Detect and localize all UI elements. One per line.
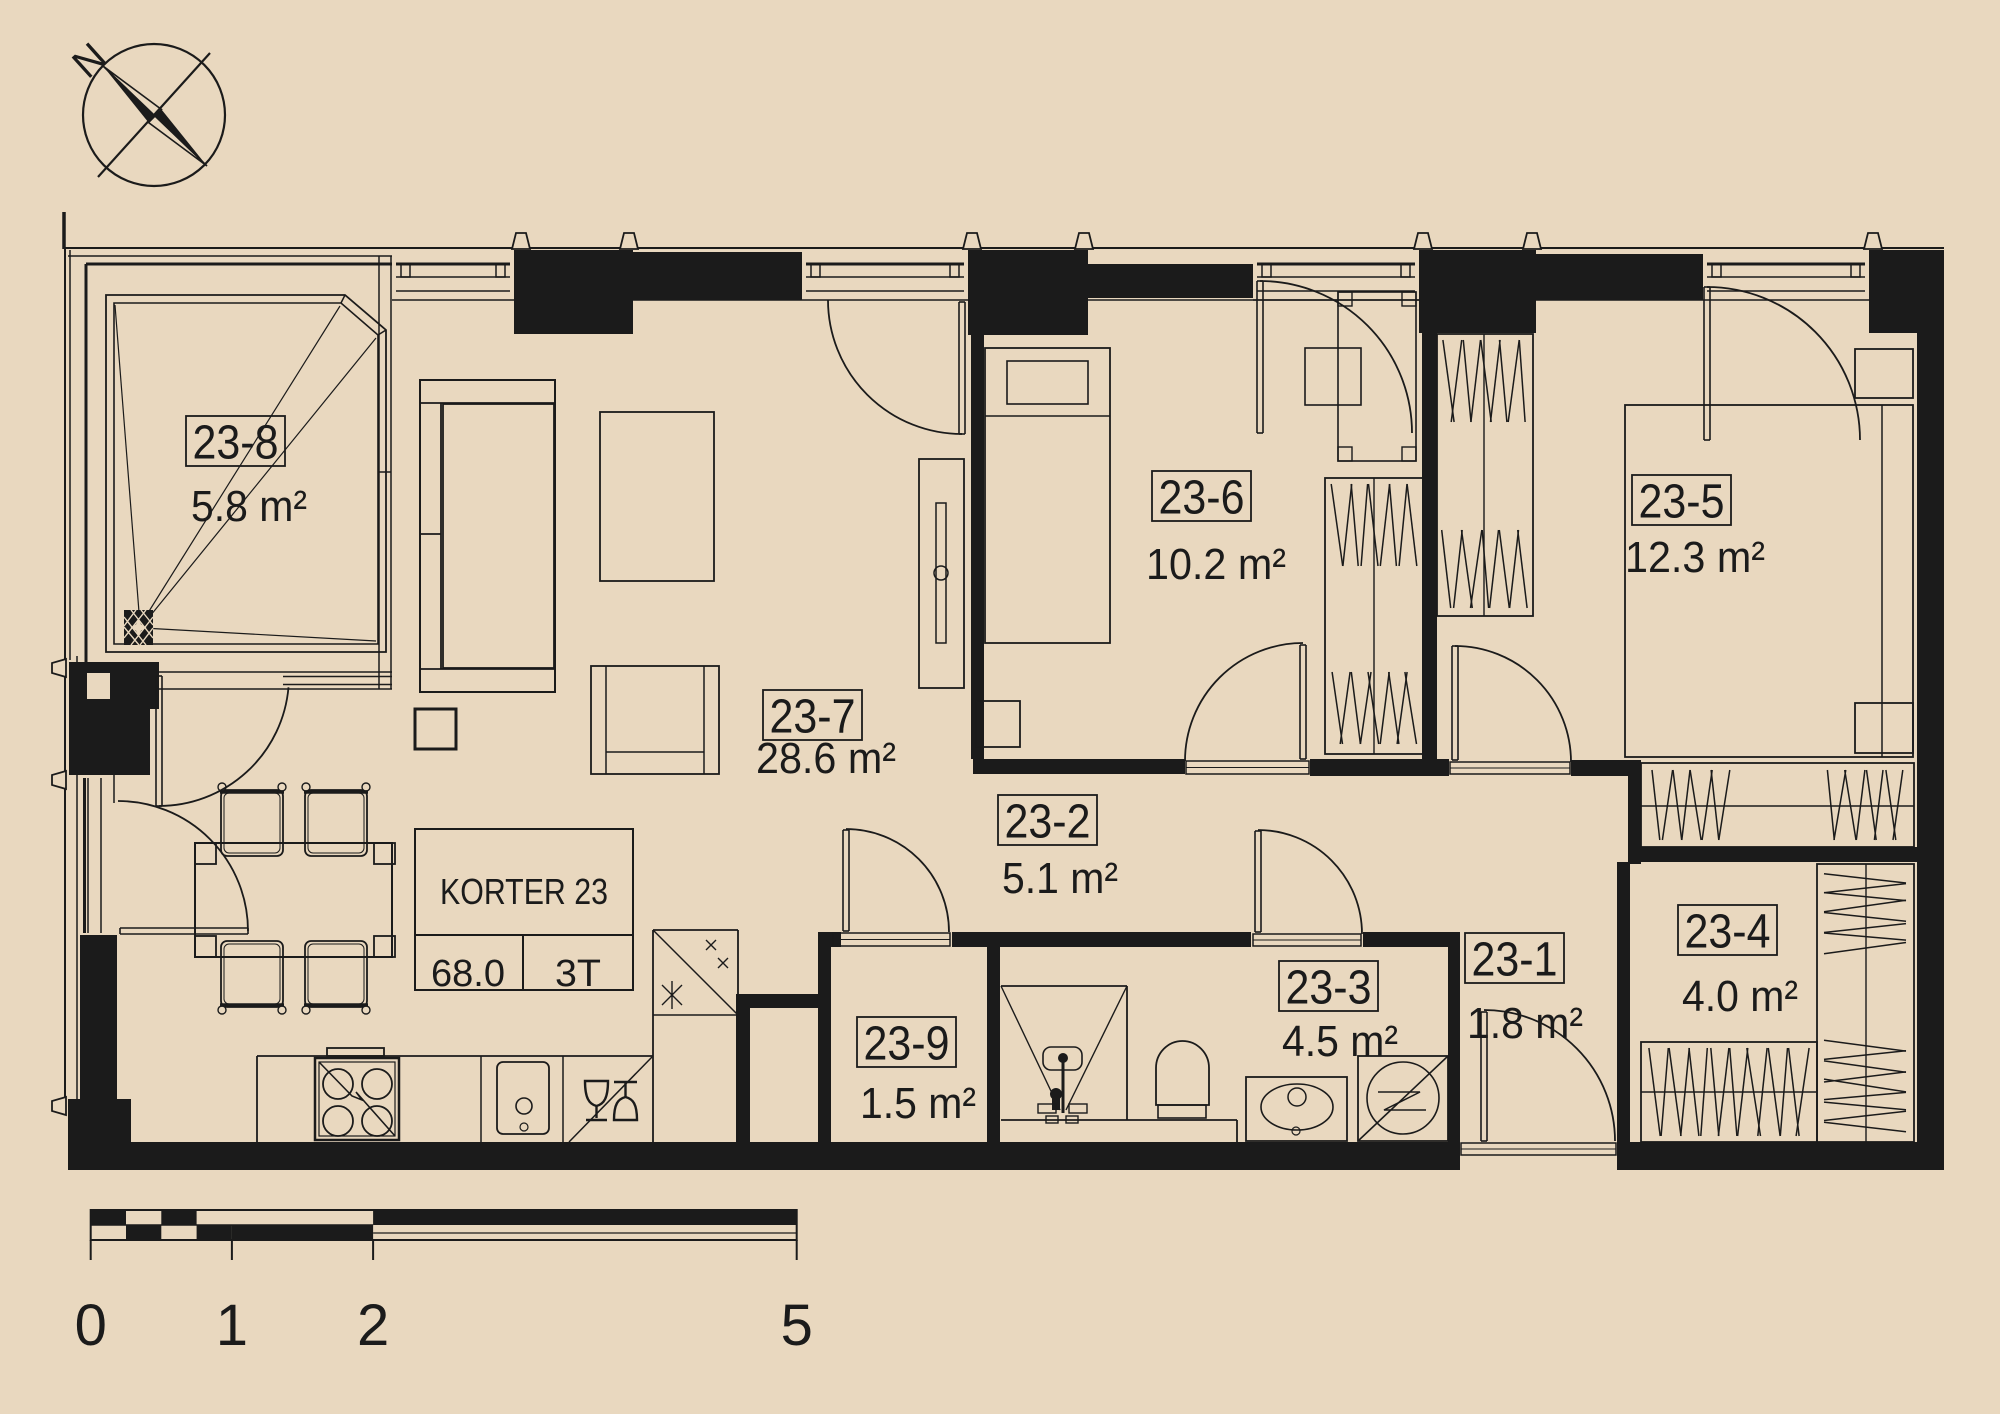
svg-text:10.2 m²: 10.2 m² <box>1146 540 1286 589</box>
svg-text:12.3 m²: 12.3 m² <box>1625 533 1765 582</box>
svg-text:1.8 m²: 1.8 m² <box>1467 999 1583 1048</box>
svg-text:23-5: 23-5 <box>1639 475 1725 528</box>
svg-text:23-8: 23-8 <box>193 416 279 469</box>
svg-text:1: 1 <box>216 1293 248 1358</box>
svg-text:23-9: 23-9 <box>864 1017 950 1070</box>
svg-text:23-4: 23-4 <box>1685 905 1771 958</box>
svg-text:23-2: 23-2 <box>1005 795 1091 848</box>
svg-text:5.1 m²: 5.1 m² <box>1002 854 1118 903</box>
svg-text:0: 0 <box>75 1293 107 1358</box>
svg-text:2: 2 <box>357 1293 389 1358</box>
svg-text:N: N <box>64 35 115 87</box>
svg-text:23-6: 23-6 <box>1159 471 1245 524</box>
svg-text:28.6 m²: 28.6 m² <box>756 734 896 783</box>
svg-text:23-1: 23-1 <box>1472 933 1558 986</box>
svg-text:5: 5 <box>781 1293 813 1358</box>
svg-text:3T: 3T <box>555 953 601 995</box>
svg-text:4.0 m²: 4.0 m² <box>1682 972 1798 1021</box>
svg-text:23-3: 23-3 <box>1286 961 1372 1014</box>
svg-text:68.0: 68.0 <box>431 953 505 995</box>
svg-text:KORTER 23: KORTER 23 <box>440 871 608 912</box>
svg-text:1.5 m²: 1.5 m² <box>860 1079 976 1128</box>
svg-text:5.8 m²: 5.8 m² <box>191 482 307 531</box>
svg-text:4.5 m²: 4.5 m² <box>1282 1017 1398 1066</box>
